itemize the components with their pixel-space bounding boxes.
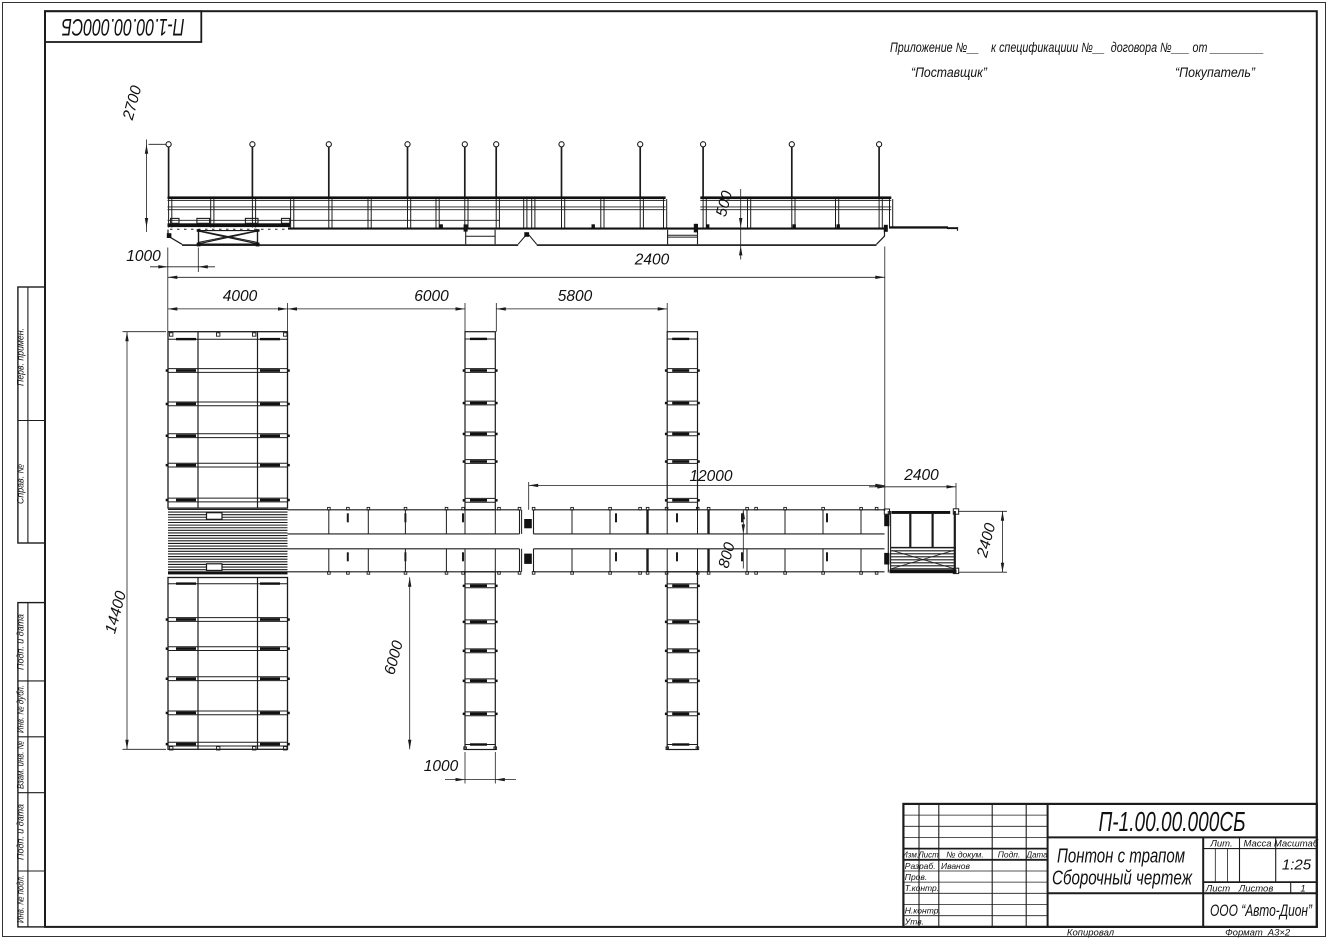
svg-text:Дата: Дата [1025, 851, 1048, 860]
svg-text:1000: 1000 [126, 248, 161, 265]
svg-text:Масштаб: Масштаб [1274, 839, 1319, 850]
svg-text:2400: 2400 [903, 467, 939, 484]
svg-text:12000: 12000 [689, 468, 732, 485]
svg-text:Подп. и дата: Подп. и дата [16, 804, 26, 860]
svg-text:Пров.: Пров. [905, 872, 927, 882]
svg-text:Копировал: Копировал [1067, 927, 1115, 938]
svg-text:П-1.00.00.000СБ: П-1.00.00.000СБ [62, 13, 185, 40]
svg-text:Масса: Масса [1243, 839, 1271, 850]
svg-text:Понтон с трапом: Понтон с трапом [1057, 846, 1185, 868]
svg-text:Подп.: Подп. [998, 850, 1021, 860]
svg-text:Инв. № подл.: Инв. № подл. [16, 875, 26, 923]
svg-text:6000: 6000 [414, 288, 449, 305]
svg-text:Приложение №__ к спецификац: Приложение №__ к спецификациии №__ догов… [890, 40, 1264, 55]
svg-text:Формат: Формат [1225, 927, 1263, 938]
svg-text:П-1.00.00.000СБ: П-1.00.00.000СБ [1099, 806, 1246, 837]
svg-text:“Поставщик”: “Поставщик” [911, 65, 987, 80]
svg-text:“Покупатель”: “Покупатель” [1175, 65, 1255, 80]
svg-text:1: 1 [1300, 884, 1305, 895]
svg-text:Лист: Лист [1205, 884, 1231, 895]
svg-text:Лист: Лист [917, 851, 939, 860]
svg-text:Сборочный чертеж: Сборочный чертеж [1052, 868, 1193, 890]
svg-text:Перв. примен.: Перв. примен. [16, 328, 26, 386]
svg-text:Справ. №: Справ. № [16, 464, 26, 504]
svg-text:Листов: Листов [1238, 884, 1274, 895]
svg-text:4000: 4000 [223, 288, 258, 305]
svg-text:№ докум.: № докум. [946, 850, 983, 860]
svg-text:Т.контр.: Т.контр. [905, 883, 939, 893]
svg-text:Взам. инв. №: Взам. инв. № [16, 741, 26, 789]
svg-text:ООО “Авто-Дион”: ООО “Авто-Дион” [1210, 901, 1313, 920]
svg-text:Подп. и дата: Подп. и дата [16, 614, 26, 670]
svg-text:Изм.: Изм. [902, 851, 919, 860]
svg-text:А3×2: А3×2 [1267, 927, 1291, 938]
svg-text:1000: 1000 [424, 758, 459, 775]
svg-text:Н.контр.: Н.контр. [905, 906, 941, 916]
svg-text:5800: 5800 [558, 288, 593, 305]
svg-text:Разраб.: Разраб. [905, 861, 936, 871]
svg-text:Инв. № дубл.: Инв. № дубл. [16, 685, 26, 733]
svg-text:1:25: 1:25 [1282, 857, 1312, 874]
svg-text:Утв.: Утв. [904, 917, 924, 927]
svg-text:Лит.: Лит. [1209, 839, 1232, 850]
svg-text:Иванов: Иванов [941, 861, 970, 871]
svg-text:2400: 2400 [634, 252, 670, 269]
